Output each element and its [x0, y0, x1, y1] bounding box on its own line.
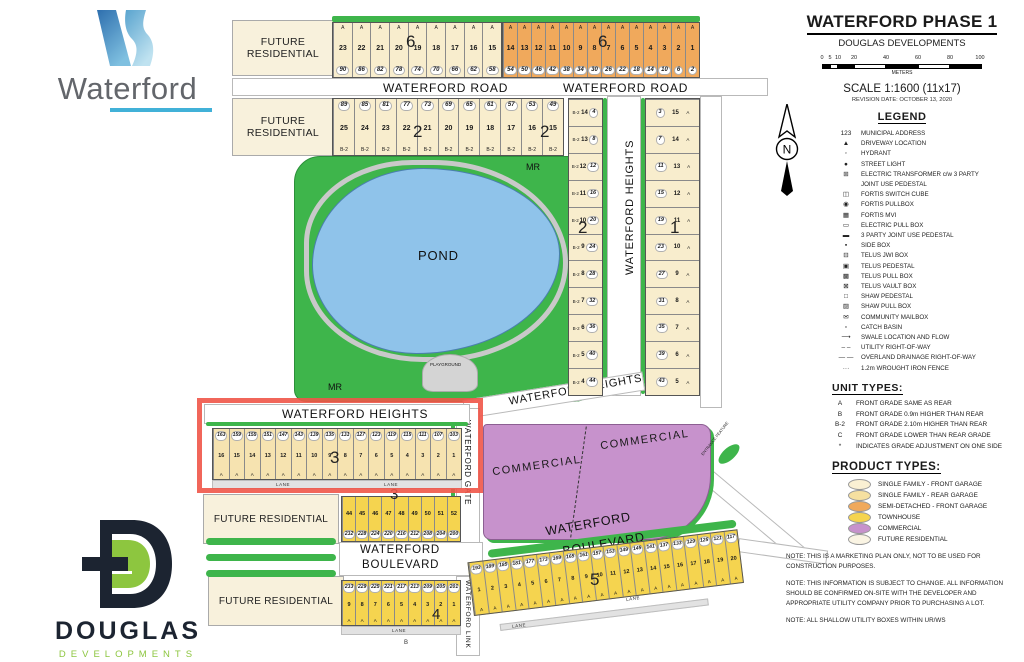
lot-unit-type: B-2 — [573, 353, 580, 358]
lot-unit-type: B-2 — [573, 326, 580, 331]
lot-cell: 233 9 A — [342, 581, 355, 625]
lot-number: 14 — [672, 137, 679, 143]
legend-item: ▭ ELECTRIC PULL BOX — [838, 221, 1018, 231]
legend-symbol-icon: ▨ — [838, 302, 854, 312]
waterford-underline — [110, 108, 212, 112]
lot-number: 12 — [535, 45, 543, 52]
lot-address: 15 — [655, 189, 667, 199]
lot-address: 89 — [338, 101, 351, 111]
product-type-row: COMMERCIAL — [848, 523, 1018, 534]
lot-address: 69 — [442, 101, 455, 111]
lot-cell: 15 12 A — [646, 180, 699, 207]
lot-number: 7 — [675, 325, 678, 331]
product-type-label: SINGLE FAMILY - REAR GARAGE — [878, 490, 978, 501]
legend-item: — — OVERLAND DRAINAGE RIGHT-OF-WAY — [838, 353, 1018, 363]
legend-item: 123 MUNICIPAL ADDRESS — [838, 129, 1018, 139]
lot-address: 46 — [532, 66, 545, 76]
lot-number: 52 — [451, 511, 457, 517]
lot-unit-type: A — [551, 25, 554, 31]
lot-number: 3 — [426, 602, 429, 608]
lot-unit-type: A — [374, 618, 377, 623]
lot-address: 16 — [587, 189, 599, 199]
waterford-blvd-label-line1: WATERFORD — [360, 544, 440, 556]
lot-address: 149 — [617, 546, 630, 557]
lot-number: 20 — [730, 556, 737, 563]
legend-item: ▲ DRIVEWAY LOCATION — [838, 139, 1018, 149]
lot-number: 11 — [610, 571, 617, 578]
lot-number: 13 — [521, 45, 529, 52]
lot-number: 4 — [413, 602, 416, 608]
lot-number: 15 — [672, 110, 679, 116]
notes-list: NOTE: THIS IS A MARKETING PLAN ONLY, NOT… — [786, 552, 1018, 626]
lot-number: 15 — [549, 125, 557, 132]
lot-address: 62 — [467, 66, 480, 76]
lot-unit-type: A — [493, 605, 497, 610]
lot-address: 22 — [616, 66, 629, 76]
legend-symbol-icon: ⊞ — [838, 170, 854, 180]
lot-address: 169 — [550, 554, 563, 565]
blvd-median-left-3 — [206, 570, 336, 577]
lot-cell: 213 4 A — [408, 581, 421, 625]
scale-tick: 100 — [975, 55, 984, 61]
lot-cell: B-2 14 4 — [569, 99, 602, 126]
lot-unit-type: B-2 — [382, 147, 390, 153]
heights-verge-west — [603, 98, 607, 394]
lot-cell: 22 6 A — [615, 23, 629, 77]
lot-number: 21 — [424, 125, 432, 132]
lot-address: 26 — [602, 66, 615, 76]
lot-unit-type: A — [341, 25, 344, 31]
legend-symbol-icon: ⊠ — [838, 282, 854, 292]
lot-address: 125 — [698, 536, 711, 547]
legend-label: FORTIS SWITCH CUBE — [861, 190, 929, 200]
scale-bar: 0 5 10 20 40 60 80 100 METERS — [822, 55, 982, 77]
lot-unit-type: B-2 — [573, 245, 580, 250]
lot-address: 50 — [518, 66, 531, 76]
unit-type-code: * — [832, 442, 848, 453]
legend-label: COMMUNITY MAILBOX — [861, 313, 928, 323]
product-type-row: FUTURE RESIDENTIAL — [848, 534, 1018, 545]
legend-item: ▩ TELUS PULL BOX — [838, 272, 1018, 282]
lot-cell: 65 19 B-2 — [458, 99, 479, 155]
lot-address: 6 — [674, 66, 683, 76]
lot-unit-type: A — [686, 353, 689, 358]
lot-address: 153 — [604, 547, 617, 558]
unit-type-row: * INDICATES GRADE ADJUSTMENT ON ONE SIDE — [832, 442, 1018, 453]
lot-address: 30 — [588, 66, 601, 76]
lot-number: 13 — [581, 137, 588, 143]
legend-symbol-icon: ▣ — [838, 262, 854, 272]
lot-cell: 69 20 B-2 — [438, 99, 459, 155]
legend-label: OVERLAND DRAINAGE RIGHT-OF-WAY — [861, 353, 976, 363]
unit-type-desc: FRONT GRADE LOWER THAN REAR GRADE — [856, 431, 991, 442]
lot-address: 86 — [355, 66, 368, 76]
lot-address: 224 — [369, 530, 381, 540]
lot-row-block6-west: 90 23 A 86 22 A 82 21 A 78 20 A 74 19 A … — [332, 22, 502, 78]
lot-address: 61 — [484, 101, 497, 111]
lot-unit-type: A — [509, 25, 512, 31]
legend-item: ✉ COMMUNITY MAILBOX — [838, 313, 1018, 323]
lot-unit-type: A — [413, 618, 416, 623]
lot-unit-type: A — [361, 618, 364, 623]
block-2-label-c: 2 — [578, 218, 587, 238]
lot-unit-type: A — [348, 618, 351, 623]
legend-symbol-icon: ● — [838, 160, 854, 170]
lot-unit-type: B-2 — [573, 299, 580, 304]
lot-unit-type: A — [480, 607, 484, 612]
legend-item: ▦ FORTIS MVI — [838, 211, 1018, 221]
lot-cell: B-2 7 32 — [569, 287, 602, 314]
unit-type-row: C FRONT GRADE LOWER THAN REAR GRADE — [832, 431, 1018, 442]
lot-unit-type: A — [491, 25, 494, 31]
playground-area — [422, 354, 478, 392]
unit-b-marker: B — [404, 640, 409, 646]
lot-unit-type: A — [579, 25, 582, 31]
lot-address: 11 — [655, 162, 667, 172]
lot-cell: 31 8 A — [646, 287, 699, 314]
lot-unit-type: B-2 — [466, 147, 474, 153]
lot-column-block1: 3 15 A 7 14 A 11 13 A 15 12 A 19 11 A 23… — [645, 98, 700, 396]
lot-number: 14 — [581, 110, 588, 116]
lot-unit-type: A — [452, 618, 455, 623]
legend-symbol-icon: ◫ — [838, 190, 854, 200]
legend-item: ◦ HYDRANT — [838, 149, 1018, 159]
waterford-road-label-1: WATERFORD ROAD — [383, 81, 508, 95]
lot-cell: 89 25 B-2 — [333, 99, 354, 155]
lot-number: 7 — [374, 602, 377, 608]
lot-address: 229 — [356, 583, 368, 593]
unit-type-desc: FRONT GRADE 2.10m HIGHER THAN REAR — [856, 420, 987, 431]
legend-label: TELUS VAULT BOX — [861, 282, 916, 292]
lot-address: 225 — [369, 583, 381, 593]
lot-cell: B-2 13 8 — [569, 126, 602, 153]
lot-number: 15 — [663, 564, 670, 571]
unit-type-desc: FRONT GRADE SAME AS REAR — [856, 399, 952, 410]
lot-number: 18 — [432, 45, 440, 52]
legend-item: ◉ FORTIS PULLBOX — [838, 200, 1018, 210]
lot-address: 228 — [356, 530, 368, 540]
waterford-logo: Waterford — [25, 10, 230, 112]
lot-address: 137 — [657, 541, 670, 552]
lot-cell: 225 7 A — [368, 581, 381, 625]
lot-address: 78 — [393, 66, 406, 76]
lot-number: 17 — [690, 561, 697, 568]
legend-item: ▨ SHAW PULL BOX — [838, 302, 1018, 312]
lot-unit-type: A — [520, 602, 524, 607]
lot-number: 5 — [531, 581, 535, 587]
lot-cell: 50 13 A — [517, 23, 531, 77]
future-residential-3: FUTURE RESIDENTIAL — [203, 494, 339, 544]
lot-unit-type: B-2 — [361, 147, 369, 153]
legend-label: 1.2m WROUGHT IRON FENCE — [861, 364, 949, 374]
legend-item: □ SHAW PEDESTAL — [838, 292, 1018, 302]
legend-item: ▪ SIDE BOX — [838, 241, 1018, 251]
lot-number: 17 — [507, 125, 515, 132]
lot-cell: 200 52 — [447, 497, 460, 541]
lot-unit-type: A — [667, 584, 671, 589]
entrance-feature-icon — [715, 441, 742, 467]
legend-symbol-icon: ··· — [838, 364, 854, 374]
lot-address: 216 — [395, 530, 407, 540]
lot-address: 31 — [656, 297, 668, 307]
lot-unit-type: A — [687, 164, 690, 169]
lot-cell: B-2 11 16 — [569, 180, 602, 207]
lot-address: 23 — [655, 243, 667, 253]
block-2-label-b: 2 — [540, 122, 549, 142]
lot-cell: 10 3 A — [657, 23, 671, 77]
lot-number: 5 — [635, 45, 639, 52]
legend-label: STREET LIGHT — [861, 160, 905, 170]
lot-address: 121 — [711, 534, 724, 545]
note-text: NOTE: THIS IS A MARKETING PLAN ONLY, NOT… — [786, 552, 1018, 572]
lot-cell: 39 6 A — [646, 341, 699, 368]
product-type-swatch — [848, 501, 871, 512]
lot-unit-type: A — [707, 579, 711, 584]
lot-address: 35 — [656, 323, 668, 333]
lot-number: 6 — [675, 352, 678, 358]
lot-address: 43 — [656, 377, 668, 387]
product-type-swatch — [848, 479, 871, 490]
lot-cell: 38 10 A — [559, 23, 573, 77]
lot-unit-type: A — [523, 25, 526, 31]
lot-number: 17 — [451, 45, 459, 52]
legend-symbol-icon: ⊟ — [838, 251, 854, 261]
unit-types-list: A FRONT GRADE SAME AS REAR B FRONT GRADE… — [832, 399, 1018, 453]
legend-item: ⊞ ELECTRIC TRANSFORMER c/w 3 PARTY JOINT… — [838, 170, 1018, 190]
lot-address: 66 — [449, 66, 462, 76]
lot-number: 47 — [385, 511, 391, 517]
waterford-heights-label-vertical: WATERFORD HEIGHTS — [624, 140, 636, 275]
product-type-label: COMMERCIAL — [878, 523, 921, 534]
lot-number: 20 — [395, 45, 403, 52]
lot-address: 204 — [435, 530, 447, 540]
legend-item: – – UTILITY RIGHT-OF-WAY — [838, 343, 1018, 353]
lot-address: 3 — [656, 108, 665, 118]
lot-unit-type: A — [621, 25, 624, 31]
lot-unit-type: B-2 — [549, 147, 557, 153]
block-4-label: 4 — [432, 606, 440, 623]
legend-label: TELUS PEDESTAL — [861, 262, 915, 272]
lot-unit-type: A — [734, 576, 738, 581]
lot-unit-type: A — [472, 25, 475, 31]
lot-unit-type: A — [654, 585, 658, 590]
legend-list: 123 MUNICIPAL ADDRESS ▲ DRIVEWAY LOCATIO… — [838, 129, 1018, 374]
product-type-swatch — [848, 512, 871, 523]
lot-number: 6 — [387, 602, 390, 608]
unit-type-code: A — [832, 399, 848, 410]
lot-unit-type: B-2 — [507, 147, 515, 153]
douglas-wordmark: DOUGLAS — [38, 617, 218, 646]
lot-address: 201 — [448, 583, 460, 593]
lot-number: 19 — [465, 125, 473, 132]
legend-label: TELUS JWI BOX — [861, 251, 908, 261]
lot-number: 16 — [677, 562, 684, 569]
lot-address: 233 — [343, 583, 355, 593]
legend-symbol-icon: ▪ — [838, 241, 854, 251]
lot-number: 10 — [563, 45, 571, 52]
lot-cell: 232 44 — [342, 497, 355, 541]
lot-unit-type: A — [686, 299, 689, 304]
lot-unit-type: B-2 — [573, 137, 580, 142]
lot-unit-type: A — [587, 594, 591, 599]
lot-address: 12 — [587, 162, 599, 172]
lot-number: 14 — [650, 566, 657, 573]
legend-label: UTILITY RIGHT-OF-WAY — [861, 343, 931, 353]
lot-cell: 208 50 — [421, 497, 434, 541]
lot-number: 9 — [579, 45, 583, 52]
lot-unit-type: A — [574, 595, 578, 600]
plan-title: WATERFORD PHASE 1 — [807, 12, 998, 35]
mr-label-2: MR — [328, 382, 342, 392]
lot-address: 117 — [725, 532, 738, 543]
lot-unit-type: A — [435, 25, 438, 31]
legend-symbol-icon: ▲ — [838, 139, 854, 149]
lot-row-block3-townhouse: 232 44 228 45 224 46 220 47 216 48 212 4… — [341, 496, 461, 542]
legend-symbol-icon: – – — [838, 343, 854, 353]
playground-label: PLAYGROUND — [430, 362, 461, 367]
lot-number: 11 — [549, 45, 556, 52]
blvd-median-left-1 — [206, 538, 336, 545]
lot-number: 5 — [581, 352, 584, 358]
legend-symbol-icon: ▬ — [838, 231, 854, 241]
product-type-swatch — [848, 523, 871, 534]
lot-unit-type: B-2 — [573, 272, 580, 277]
lot-unit-type: A — [627, 589, 631, 594]
lot-cell: 212 49 — [408, 497, 421, 541]
lot-address: 161 — [577, 550, 590, 561]
lot-address: 208 — [422, 530, 434, 540]
lot-unit-type: A — [686, 380, 689, 385]
info-panel: WATERFORD PHASE 1 DOUGLAS DEVELOPMENTS 0… — [786, 12, 1018, 626]
lot-number: 3 — [663, 45, 667, 52]
lot-number: 18 — [704, 559, 711, 566]
lot-unit-type: A — [379, 25, 382, 31]
scale-tick: 20 — [851, 55, 857, 61]
lot-address: 217 — [395, 583, 407, 593]
product-type-label: SEMI-DETACHED - FRONT GARAGE — [878, 501, 987, 512]
douglas-logo: DOUGLAS DEVELOPMENTS — [38, 520, 218, 660]
lot-cell: 14 4 A — [643, 23, 657, 77]
lot-number: 13 — [637, 567, 644, 574]
lot-unit-type: A — [687, 245, 690, 250]
product-type-label: TOWNHOUSE — [878, 512, 920, 523]
douglas-d-icon — [82, 520, 174, 608]
lot-unit-type: A — [687, 191, 690, 196]
lot-unit-type: A — [397, 25, 400, 31]
lot-address: 74 — [411, 66, 424, 76]
unit-type-code: C — [832, 431, 848, 442]
lot-cell: 2 1 A — [685, 23, 699, 77]
legend-symbol-icon: □ — [838, 292, 854, 302]
lot-number: 13 — [674, 164, 681, 170]
lot-unit-type: B-2 — [424, 147, 432, 153]
lot-address: 36 — [586, 323, 598, 333]
lot-address: 65 — [463, 101, 476, 111]
lot-number: 20 — [445, 125, 453, 132]
lot-address: 70 — [430, 66, 443, 76]
lot-number: 8 — [593, 45, 597, 52]
lot-cell: 34 9 A — [573, 23, 587, 77]
unit-type-code: B — [832, 410, 848, 421]
legend-item: ● STREET LIGHT — [838, 160, 1018, 170]
unit-type-desc: INDICATES GRADE ADJUSTMENT ON ONE SIDE — [856, 442, 1002, 453]
legend-symbol-icon: ▦ — [838, 211, 854, 221]
lot-address: 44 — [586, 377, 598, 387]
lot-number: 4 — [649, 45, 653, 52]
product-type-row: SINGLE FAMILY - FRONT GARAGE — [848, 479, 1018, 490]
lot-unit-type: A — [649, 25, 652, 31]
lot-cell: 82 21 A — [370, 23, 389, 77]
lot-number: 8 — [675, 298, 678, 304]
lot-cell: 220 47 — [381, 497, 394, 541]
lot-number: 48 — [398, 511, 404, 517]
scale-tick: 0 — [820, 55, 823, 61]
lot-cell: 35 7 A — [646, 314, 699, 341]
legend-label: FORTIS PULLBOX — [861, 200, 914, 210]
lot-number: 8 — [361, 602, 364, 608]
lot-number: 1 — [691, 45, 695, 52]
lot-cell: 217 5 A — [394, 581, 407, 625]
block-5-label: 5 — [590, 570, 599, 590]
lot-number: 4 — [581, 379, 584, 385]
lot-address: 10 — [658, 66, 671, 76]
lot-unit-type: A — [663, 25, 666, 31]
unit-type-desc: FRONT GRADE 0.9m HIGHER THAN REAR — [856, 410, 984, 421]
legend-label: HYDRANT — [861, 149, 891, 159]
lot-cell: 7 14 A — [646, 126, 699, 153]
lot-address: 157 — [590, 549, 603, 560]
legend-item: ◫ FORTIS SWITCH CUBE — [838, 190, 1018, 200]
lot-cell: 3 15 A — [646, 99, 699, 126]
lot-address: 8 — [589, 135, 598, 145]
lot-address: 189 — [483, 562, 496, 573]
lot-number: 49 — [412, 511, 418, 517]
legend-label: FORTIS MVI — [861, 211, 896, 221]
scale-text: SCALE 1:1600 (11x17) — [786, 83, 1018, 95]
lot-number: 12 — [674, 191, 681, 197]
lot-address: 53 — [526, 101, 539, 111]
lane-label-5: LANE — [626, 595, 641, 602]
lot-unit-type: B-2 — [340, 147, 348, 153]
lot-address: 58 — [486, 66, 499, 76]
legend-item: ⊟ TELUS JWI BOX — [838, 251, 1018, 261]
lot-address: 185 — [497, 560, 510, 571]
lot-number: 22 — [358, 45, 366, 52]
lot-number: 6 — [544, 579, 548, 585]
lot-address: 14 — [644, 66, 657, 76]
lot-unit-type: A — [686, 137, 689, 142]
lot-number: 1 — [477, 587, 481, 593]
lot-address: 165 — [564, 552, 577, 563]
lot-cell: 70 18 A — [426, 23, 445, 77]
product-type-swatch — [848, 534, 871, 545]
lot-address: 133 — [671, 539, 684, 550]
lot-number: 2 — [491, 586, 495, 592]
plan-subtitle: DOUGLAS DEVELOPMENTS — [786, 38, 1018, 49]
lot-number: 5 — [675, 379, 678, 385]
lot-number: 24 — [361, 125, 369, 132]
lot-number: 21 — [376, 45, 384, 52]
lot-unit-type: B-2 — [573, 110, 580, 115]
lot-address: 18 — [630, 66, 643, 76]
legend-label: SHAW PEDESTAL — [861, 292, 913, 302]
legend-heading: LEGEND — [878, 111, 927, 124]
lot-number: 4 — [517, 582, 521, 588]
lot-unit-type: B-2 — [572, 191, 579, 196]
lot-unit-type: B-2 — [572, 164, 579, 169]
lot-cell: 78 20 A — [389, 23, 408, 77]
lot-address: 173 — [537, 555, 550, 566]
